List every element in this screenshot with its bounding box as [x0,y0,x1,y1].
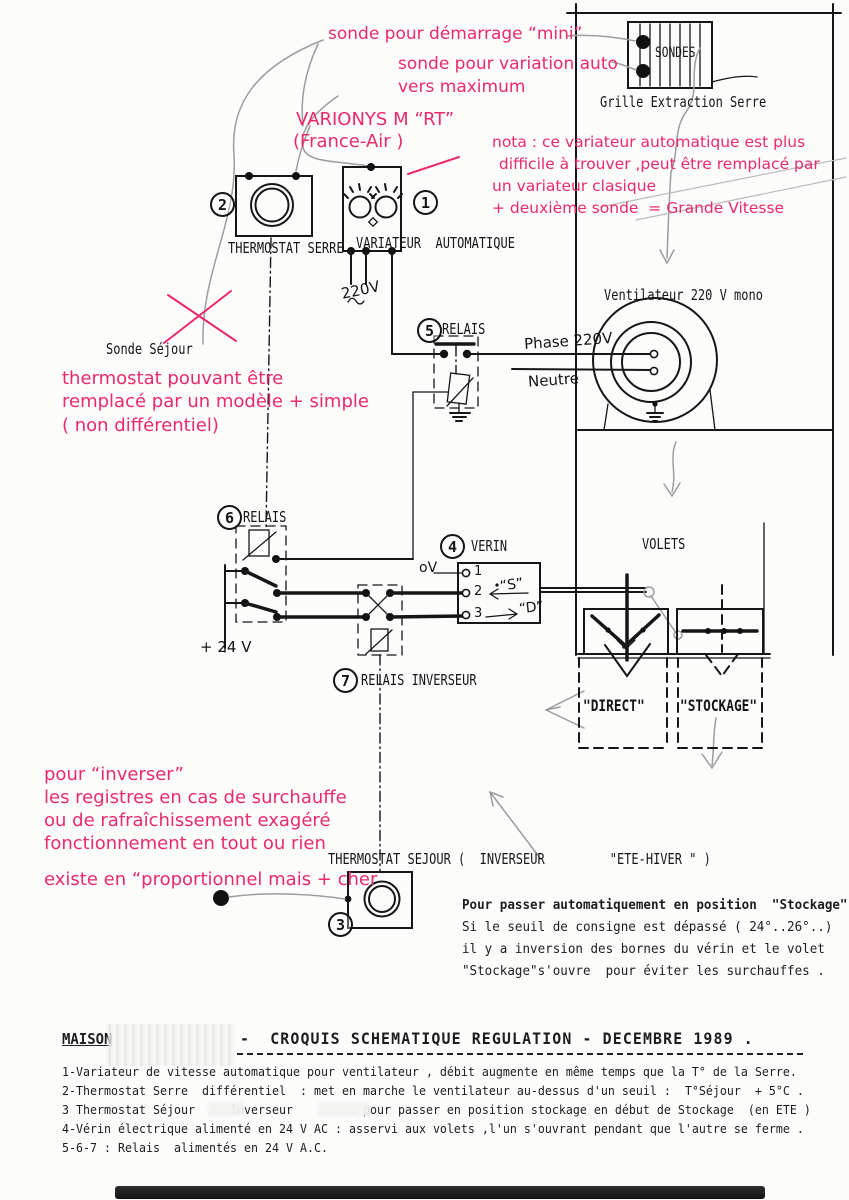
footer-title-underline [237,1053,803,1055]
annotation-sonde-variation: sonde pour variation auto [398,54,618,74]
annotation-nota-4: + deuxième sonde = Grande Vitesse [492,199,784,217]
component-number-3: 3 [328,912,353,937]
annotation-inverser-2: les registres en cas de surchauffe [44,787,347,808]
note-stockage-line-1: Pour passer automatiquement en position … [462,897,849,913]
annotation-thermostat-1: thermostat pouvant être [62,368,283,389]
redaction-smudge-line3-a [208,1102,244,1116]
label-volets: VOLETS [642,535,685,553]
annotation-france-air: (France-Air ) [293,131,403,152]
annotation-vers-maximum: vers maximum [398,77,525,97]
annotation-nota-3: un variateur clasique [492,177,656,195]
label-variateur: VARIATEUR AUTOMATIQUE [356,234,515,252]
annotation-nota-1: nota : ce variateur automatique est plus [492,133,805,151]
annotation-varionys: VARIONYS M “RT” [296,109,454,130]
label-0v: oV [419,560,437,576]
label-relais5: RELAIS [442,320,485,338]
label-ventilateur: Ventilateur 220 V mono [604,286,763,304]
annotation-nota-2: difficile à trouver ,peut être remplacé … [494,155,820,173]
annotation-sonde-demarrage: sonde pour démarrage “mini” [328,24,582,44]
note-stockage-line-3: il y a inversion des bornes du vérin et … [462,941,825,957]
footer-maison: MAISON [62,1030,112,1048]
footer-line-3: 3 Thermostat Séjour Inverseur : pour pas… [62,1102,811,1117]
component-number-4: 4 [440,534,465,559]
component-number-5: 5 [417,318,442,343]
label-neutre: Neutre [527,369,579,391]
annotation-proportionnel: existe en “proportionnel mais + cher [44,869,377,890]
label-thermostat-sejour: THERMOSTAT SEJOUR [328,850,451,868]
component-number-2: 2 [210,192,235,217]
label-inverseur-ete-hiver: ( INVERSEUR "ETE-HIVER " ) [458,850,711,868]
scan-artifact-bar [115,1186,765,1199]
footer-line-5: 5-6-7 : Relais alimentés en 24 V A.C. [62,1140,328,1155]
footer-line-2: 2-Thermostat Serre différentiel : met en… [62,1083,804,1098]
label-sens-s: “S” [499,575,524,594]
annotation-inverser-1: pour “inverser” [44,764,184,785]
footer-line-4: 4-Vérin électrique alimenté en 24 V AC :… [62,1121,804,1136]
verin-terminal-3: 3 [474,606,482,621]
footer-title: - CROQUIS SCHEMATIQUE REGULATION - DECEM… [240,1029,754,1048]
verin-terminal-2: 2 [474,584,482,599]
relais6-symbol [225,526,413,648]
label-grille-extraction: Grille Extraction Serre [600,93,766,111]
label-relais-inverseur: RELAIS INVERSEUR [361,671,477,689]
label-plus-24v: + 24 V [200,638,251,656]
label-verin: VERIN [471,537,507,555]
note-stockage-line-4: "Stockage"s'ouvre pour éviter les surcha… [462,963,825,979]
note-stockage-line-2: Si le seuil de consigne est dépassé ( 24… [462,919,832,935]
schematic-drawing [0,0,849,1200]
label-sens-d: “D” [518,599,544,617]
relais5-symbol [392,251,478,559]
volets-symbol [578,575,770,748]
thermostat-serre-symbol [236,172,312,528]
redaction-smudge-line3-b [318,1102,370,1116]
redaction-smudge-name [108,1024,235,1066]
annotation-inverser-3: ou de rafraîchissement exagéré [44,810,331,831]
component-number-6: 6 [217,505,242,530]
ventilateur-symbol [593,298,717,430]
label-relais6: RELAIS [243,508,286,526]
annotation-thermostat-3: ( non différentiel) [62,415,219,436]
scanned-schematic-page: sonde pour démarrage “mini” sonde pour v… [0,0,849,1200]
label-thermostat-serre: THERMOSTAT SERRE [228,239,344,257]
annotation-thermostat-2: remplacé par un modèle + simple [62,391,369,412]
component-number-7: 7 [333,668,358,693]
label-sondes: SONDES [655,45,695,61]
footer-line-1: 1-Variateur de vitesse automatique pour … [62,1064,797,1079]
annotation-inverser-4: fonctionnement en tout ou rien [44,833,326,854]
label-stockage: "STOCKAGE" [680,696,757,715]
label-sonde-sejour: Sonde Séjour [106,340,193,358]
relais7-symbol [358,585,464,871]
component-number-1: 1 [413,190,438,215]
label-direct: "DIRECT" [583,696,645,715]
verin-terminal-1: 1 [474,564,482,579]
